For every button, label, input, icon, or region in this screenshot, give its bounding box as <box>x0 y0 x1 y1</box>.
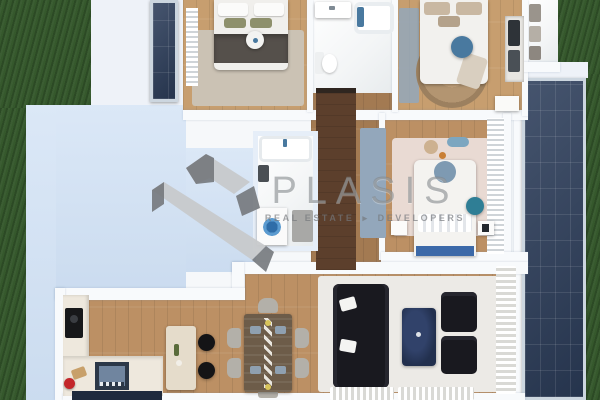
tagline-right-text: DEVELOPERS <box>378 213 466 224</box>
watermark-tagline: REAL ESTATE ▸ DEVELOPERS <box>255 213 475 224</box>
tagline-separator-icon: ▸ <box>362 213 369 224</box>
tagline-left-text: REAL ESTATE <box>265 213 355 224</box>
watermark-brand-text: PLASIS <box>255 170 475 213</box>
logo-bar-left-cap <box>152 182 164 212</box>
logo-chevron-inner-face <box>186 154 214 184</box>
floorplan-render: PLASIS REAL ESTATE ▸ DEVELOPERS <box>0 0 600 400</box>
